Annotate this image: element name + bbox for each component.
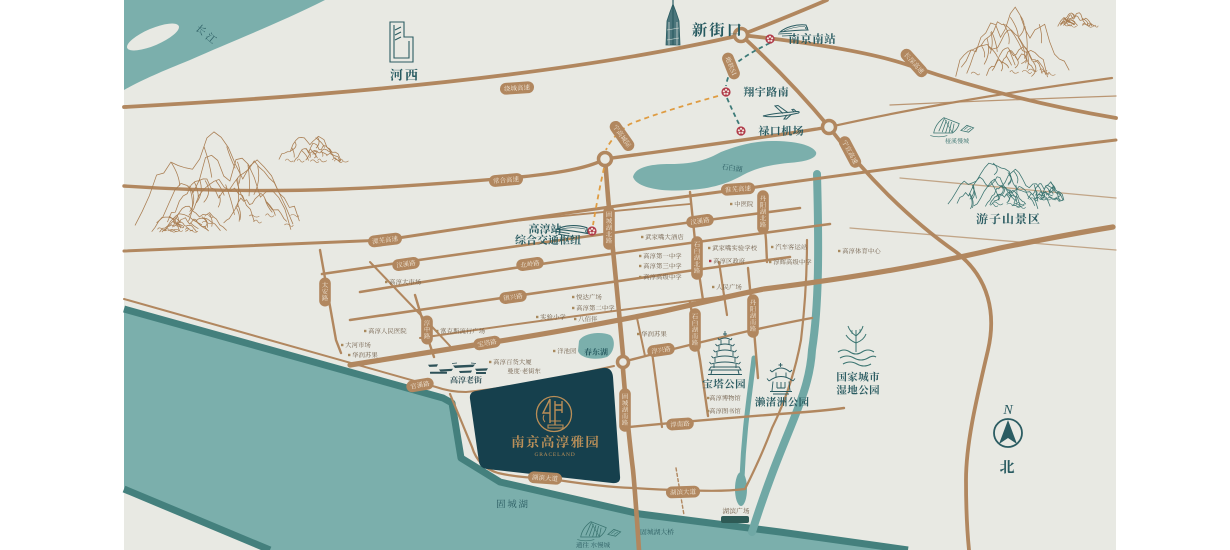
svg-text:N: N [1002,403,1013,418]
svg-text:GRACELAND: GRACELAND [534,452,575,458]
